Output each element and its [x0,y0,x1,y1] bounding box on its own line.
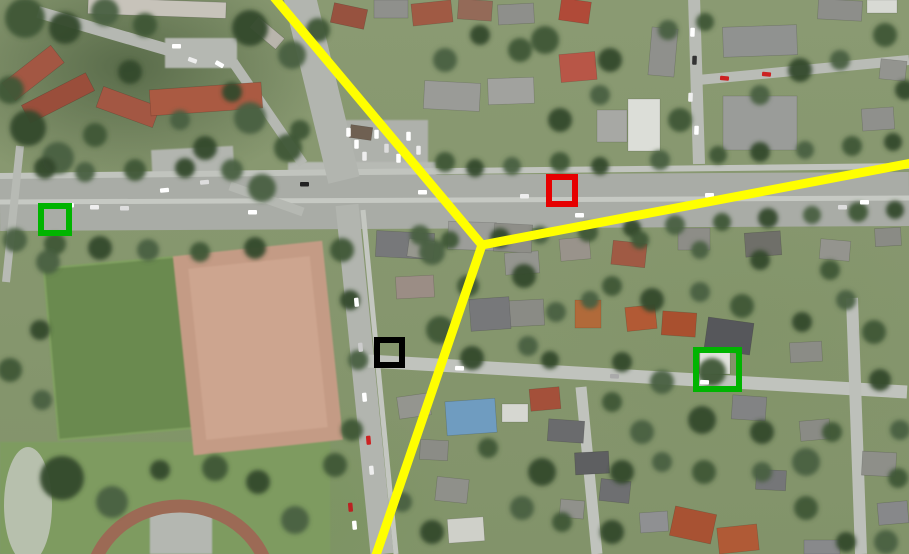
tree-canopy [842,136,862,156]
tree-canopy [246,470,270,494]
tree-canopy [652,452,672,472]
tree-canopy [730,294,754,318]
building-roof [877,501,909,526]
tree-canopy [692,460,716,484]
tree-canopy [550,152,570,172]
tree-canopy [803,206,821,224]
tree-canopy [836,532,856,552]
tree-canopy [222,82,242,102]
tree-canopy [419,239,445,265]
aerial-map-canvas[interactable] [0,0,909,554]
tree-canopy [510,496,534,520]
vehicle [354,298,359,307]
tree-canopy [631,231,649,249]
tree-canopy [552,512,572,532]
vehicle [200,180,209,185]
tree-canopy [221,159,243,181]
vehicle [248,210,257,215]
tree-canopy [581,291,599,309]
vehicle [346,128,351,137]
vehicle [374,130,379,139]
building-roof [419,439,448,460]
tree-canopy [478,438,498,458]
vehicle [90,205,99,210]
tree-canopy [650,150,670,170]
tree-canopy [40,456,84,500]
aerial-photo [0,0,909,554]
tree-canopy [232,10,268,46]
tree-canopy [202,455,228,481]
building-roof [731,395,767,421]
tree-canopy [330,238,354,262]
tree-canopy [598,48,622,72]
tree-canopy [665,215,685,235]
vehicle [366,436,371,445]
building-roof [639,511,668,533]
lane-right-south [852,298,861,554]
marker-green-west[interactable] [38,203,72,236]
tree-canopy [503,157,521,175]
vehicle [300,182,309,187]
building-roof [445,398,497,435]
tree-canopy [874,530,898,554]
tree-canopy [170,110,190,130]
building-roof [722,25,797,58]
vehicle [610,374,619,379]
tree-canopy [602,276,622,296]
tree-canopy [528,458,556,486]
vehicle [369,466,374,475]
tree-canopy [750,420,774,444]
vehicle [575,213,584,218]
tree-canopy [591,157,609,175]
vehicle [455,366,464,371]
building-roof [661,311,697,337]
tree-canopy [278,41,306,69]
tree-canopy [602,392,622,412]
building-roof [529,387,561,412]
marker-red-north[interactable] [546,174,578,207]
tree-canopy [895,80,909,100]
building-roof [457,0,492,21]
residential-street-east [368,361,907,392]
vehicle [358,343,363,352]
tree-canopy [175,158,195,178]
tree-canopy [640,288,664,312]
vehicle [688,93,693,102]
tree-canopy [34,157,56,179]
tree-canopy [10,110,46,146]
tree-canopy [590,85,610,105]
tree-canopy [248,174,276,202]
tree-canopy [234,102,266,134]
building-roof [818,0,863,21]
tree-canopy [758,208,778,228]
tree-canopy [150,460,170,480]
vehicle [692,56,697,65]
tree-canopy [548,108,572,132]
tree-canopy [691,241,709,259]
tree-canopy [600,520,624,544]
tree-canopy [348,350,368,370]
tree-canopy [541,351,559,369]
tree-canopy [96,486,128,518]
building-roof [374,0,408,18]
tree-canopy [137,239,159,261]
tree-canopy [244,237,266,259]
vehicle [352,521,357,530]
tree-canopy [750,250,770,270]
building-roof [867,0,897,13]
building-roof [411,0,453,26]
tree-canopy [83,123,107,147]
tree-canopy [190,242,210,262]
tree-canopy [124,159,146,181]
vehicle [762,72,771,77]
tree-canopy [508,38,532,62]
tree-canopy [546,302,566,322]
tree-canopy [512,264,536,288]
tree-canopy [650,370,674,394]
vehicle [406,132,411,141]
vehicle [418,190,427,195]
tree-canopy [890,420,909,440]
vehicle [838,205,847,210]
tree-canopy [836,290,856,310]
tree-canopy [796,141,814,159]
building-roof [574,451,609,475]
tree-canopy [709,146,727,164]
tree-canopy [750,85,770,105]
tree-canopy [466,159,484,177]
tree-canopy [869,369,891,391]
building-roof [717,524,759,554]
tree-canopy [752,462,772,482]
tree-canopy [36,250,60,274]
vehicle [354,140,359,149]
vehicle [160,188,169,193]
vehicle [720,76,729,81]
tree-canopy [3,228,27,252]
tree-canopy [820,260,840,280]
vehicle [348,503,353,512]
vehicle [362,152,367,161]
building-roof [559,51,597,82]
tree-canopy [118,60,142,84]
building-roof [330,3,367,30]
tree-canopy [630,420,654,444]
tree-canopy [420,520,444,544]
building-roof [507,299,544,327]
building-roof [488,77,535,105]
tree-canopy [193,136,217,160]
tree-canopy [610,460,634,484]
marker-green-east[interactable] [693,347,742,392]
tree-canopy [49,12,81,44]
tree-canopy [32,390,52,410]
tree-canopy [30,320,50,340]
tree-canopy [788,58,812,82]
tree-canopy [690,282,710,302]
tree-canopy [688,406,716,434]
tree-canopy [323,453,347,477]
tree-canopy [5,0,45,38]
tree-canopy [518,336,538,356]
tree-canopy [441,231,459,249]
tree-canopy [862,320,886,344]
tree-canopy [848,202,868,222]
building-roof [861,107,894,131]
building-roof [547,419,584,443]
dirt-pitch-inner [188,256,327,440]
grass-pitch [44,256,198,440]
building-roof [879,59,907,82]
building-roof [502,404,528,422]
tree-canopy [281,506,309,534]
tree-canopy [470,25,490,45]
tree-canopy [531,26,559,54]
tree-canopy [822,422,842,442]
tree-canopy [792,312,812,332]
building-roof [669,506,716,544]
tree-canopy [696,13,714,31]
tree-canopy [873,23,897,47]
tree-canopy [792,448,820,476]
tree-canopy [88,236,112,260]
vehicle [362,393,367,402]
vehicle [690,28,695,37]
tree-canopy [668,108,692,132]
tree-canopy [133,13,157,37]
tree-canopy [0,358,22,382]
vehicle [384,144,389,153]
vehicle [860,200,869,205]
building-roof [349,125,373,141]
tree-canopy [830,50,850,70]
tree-canopy [884,133,902,151]
tree-canopy [612,352,632,372]
vehicle [396,154,401,163]
building-roof [628,99,660,151]
vehicle [520,194,529,199]
building-roof [435,476,469,503]
vehicle [120,206,129,211]
tree-canopy [658,20,678,40]
building-roof [395,275,434,299]
building-roof [875,227,902,246]
tree-canopy [341,419,363,441]
tree-canopy [794,496,818,520]
building-roof [804,540,840,554]
tree-canopy [75,162,95,182]
building-roof [789,341,822,363]
building-roof [469,297,511,332]
tree-canopy [713,213,731,231]
building-roof [447,517,485,543]
tree-canopy [91,0,119,26]
tree-canopy [886,201,904,219]
vehicle [172,44,181,49]
building-roof [423,81,480,112]
tree-canopy [290,120,310,140]
vehicle [416,146,421,155]
tree-canopy [750,142,770,162]
building-roof [819,239,851,262]
vehicle [694,126,699,135]
marker-black-center[interactable] [374,337,405,368]
tree-canopy [433,48,457,72]
building-roof [498,3,535,25]
tree-canopy [888,468,908,488]
tree-canopy [435,152,455,172]
building-roof [597,110,627,142]
building-roof [559,0,592,24]
